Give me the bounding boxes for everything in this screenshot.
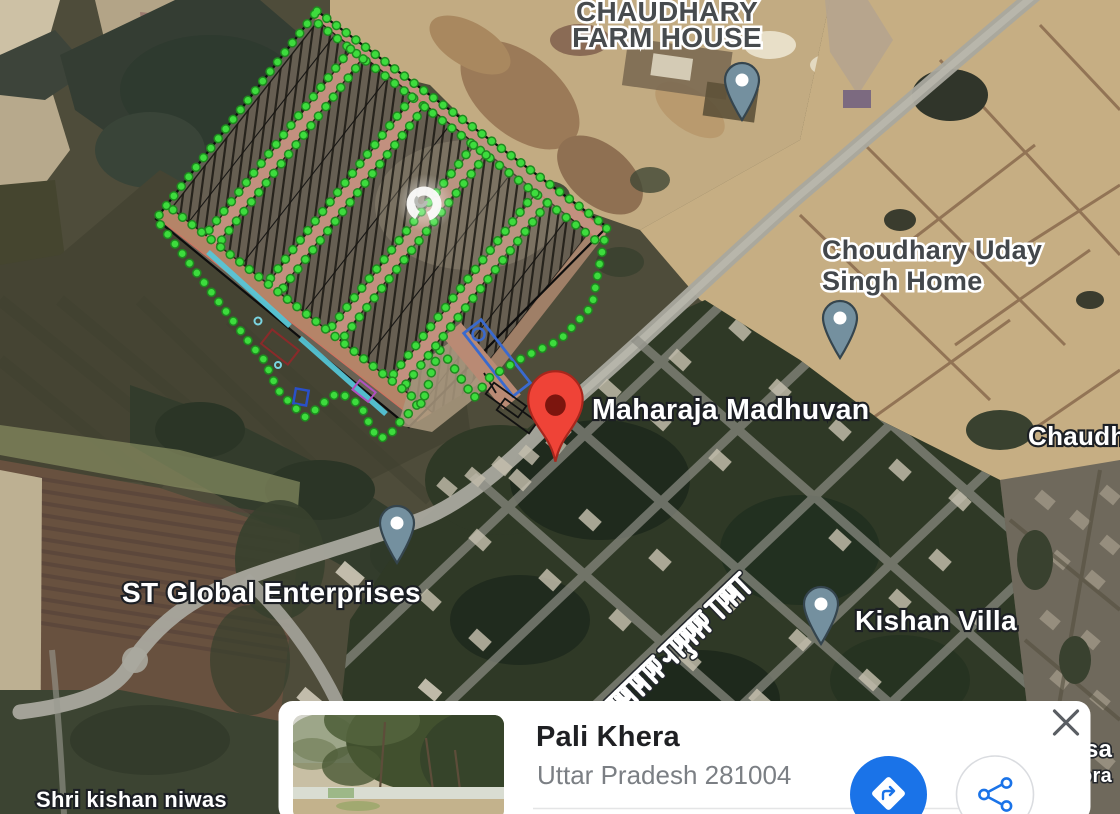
svg-text:ST Global Enterprises: ST Global Enterprises [122,577,421,608]
svg-text:Maharaja Madhuvan: Maharaja Madhuvan [592,394,870,426]
svg-text:Kishan Villa: Kishan Villa [855,605,1017,636]
svg-text:Choudhary Uday: Choudhary Uday [822,235,1042,265]
svg-text:Shri kishan niwas: Shri kishan niwas [36,787,227,812]
svg-text:FARM HOUSE: FARM HOUSE [572,22,762,53]
svg-text:Singh Home: Singh Home [822,266,983,296]
svg-text:Uttar Pradesh 281004: Uttar Pradesh 281004 [537,760,791,790]
svg-text:Pali Khera: Pali Khera [536,721,681,753]
svg-text:Chaudh: Chaudh [1028,421,1120,451]
